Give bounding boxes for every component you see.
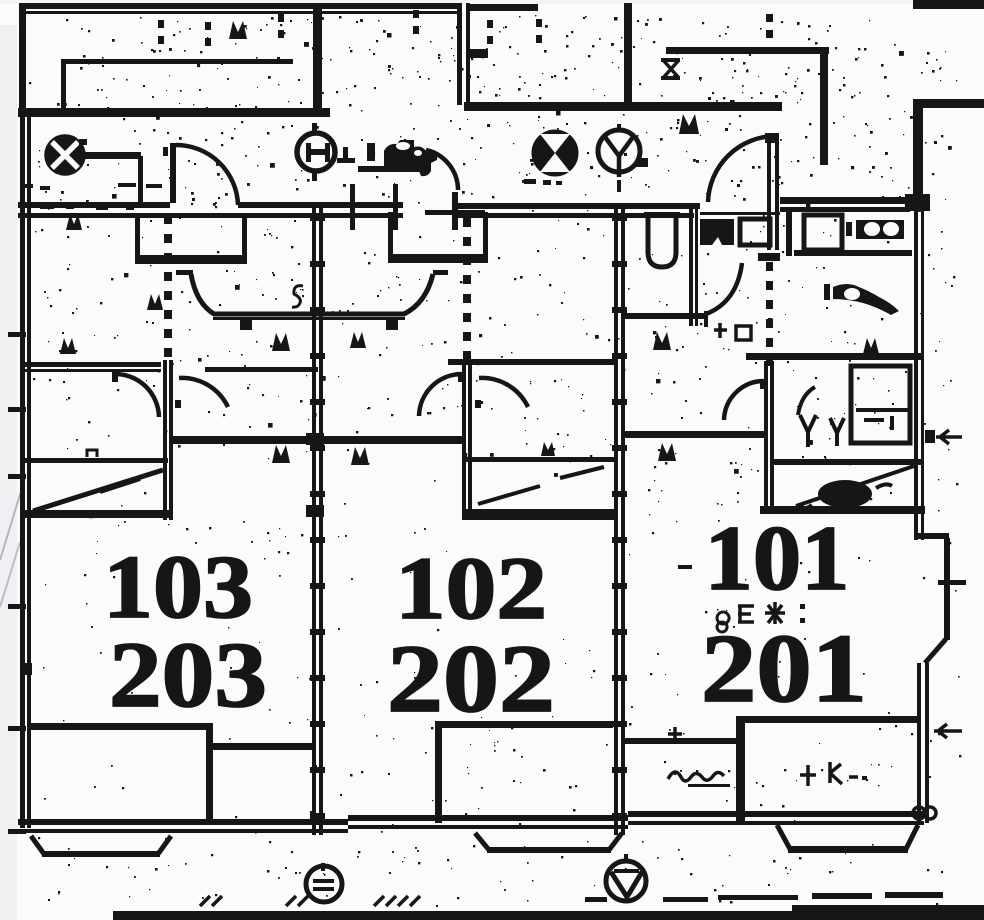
svg-text:101: 101: [705, 507, 850, 609]
svg-text:201: 201: [701, 615, 867, 722]
svg-text:103: 103: [103, 538, 253, 637]
svg-text:102: 102: [395, 540, 547, 638]
svg-text:202: 202: [387, 625, 555, 732]
svg-text:203: 203: [109, 624, 267, 727]
